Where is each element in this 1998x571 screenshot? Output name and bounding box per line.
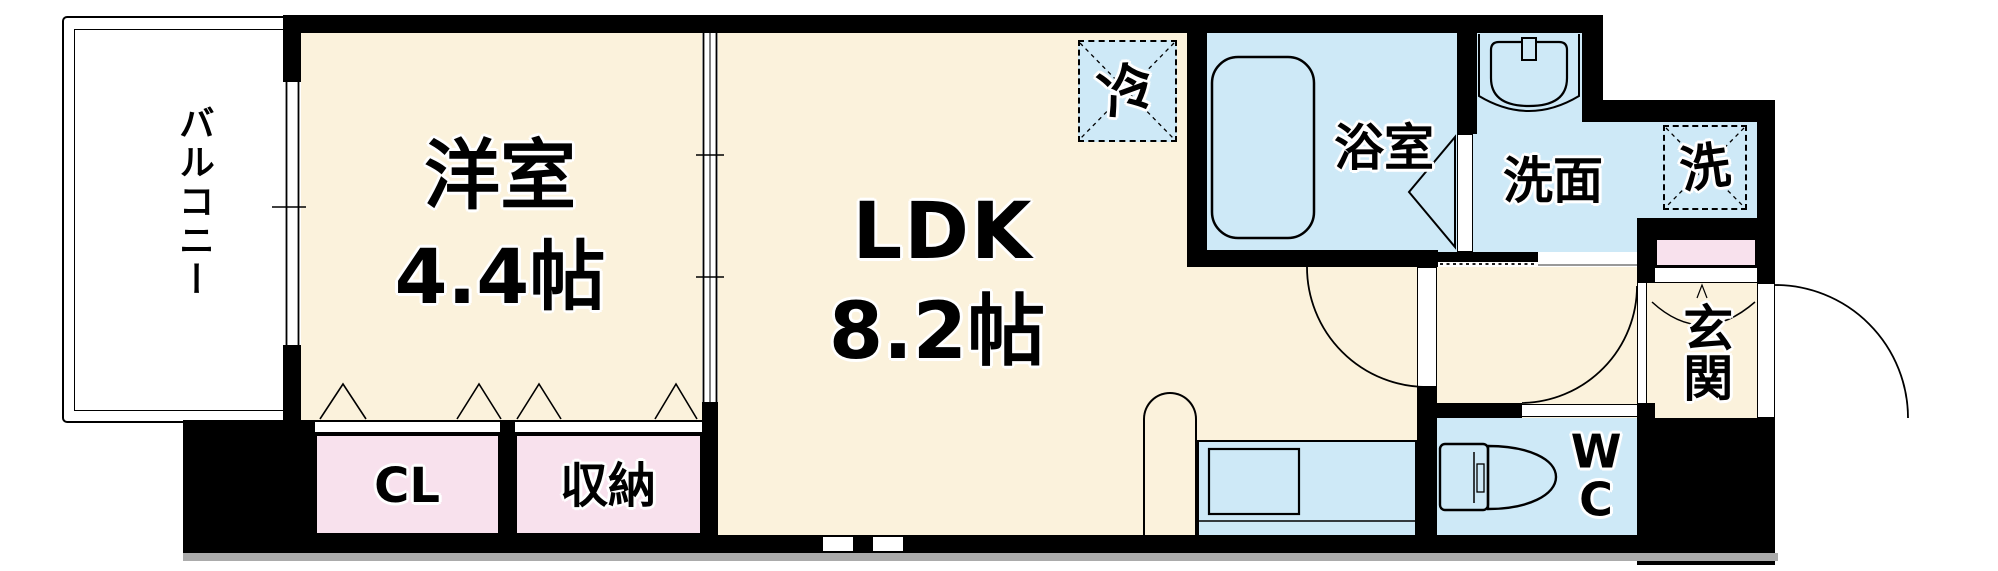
wall-partition-post [702, 402, 718, 535]
wall-vent-1 [823, 537, 853, 551]
wall-left-lower [283, 345, 301, 420]
wall-vent-2 [873, 537, 903, 551]
wall-bathroom-right [1457, 33, 1477, 134]
shoe-cabinet-track [1655, 267, 1757, 283]
wall-entrance-left [1637, 218, 1655, 283]
western-ldk-partition-door [702, 33, 718, 402]
wall-right [1757, 100, 1775, 283]
kitchen-counter [1197, 440, 1417, 537]
washer-space-label: 洗 [1677, 139, 1734, 198]
entrance-door [1757, 283, 1775, 418]
bathroom-label: 浴室 [1334, 122, 1434, 175]
wall-bathroom-left [1187, 33, 1207, 267]
entrance-label: 玄関 [1678, 302, 1731, 402]
western-room-label: 洋室 [424, 136, 576, 216]
wall-bottom-left-block [183, 420, 315, 553]
hallway-floor [1435, 267, 1637, 418]
wc-door [1522, 404, 1637, 417]
western-room-floor [301, 33, 702, 420]
wall-below-washer [1640, 218, 1775, 240]
balcony-label: バルコニー [174, 105, 212, 300]
floor-plan: バルコニー 洋室 4.4帖 LDK 8.2帖 冷 浴室 洗面 洗 玄関 WC C… [0, 0, 1998, 571]
wall-step-right-of-washroom [1582, 15, 1603, 122]
drop-shadow [183, 553, 1778, 561]
wall-bathroom-bottom [1187, 250, 1438, 267]
ldk-size-label: 8.2帖 [829, 292, 1045, 374]
wall-top [285, 15, 1603, 33]
wall-closet-divider [500, 420, 515, 535]
washroom-label: 洗面 [1503, 155, 1603, 208]
ldk-door [1417, 267, 1437, 387]
western-room-size-label: 4.4帖 [395, 237, 606, 317]
washroom-floor-lower [1582, 218, 1640, 252]
bathroom-door [1457, 134, 1473, 252]
balcony-window [284, 82, 301, 345]
wall-bottom-right-block [1655, 418, 1775, 565]
entrance-hall-divider [1637, 283, 1647, 403]
ldk-label: LDK [853, 192, 1034, 274]
entrance-door-swing-arc [1775, 285, 1908, 418]
wall-wc-top [1417, 403, 1522, 418]
wall-wc-right [1637, 403, 1655, 565]
closet-label: CL [374, 461, 440, 511]
wall-left-upper [283, 15, 301, 82]
washroom-floor [1473, 33, 1582, 252]
wc-label: WC [1571, 428, 1622, 525]
kitchen-partition-stub [1143, 392, 1197, 540]
wall-top-right [1603, 100, 1775, 122]
wall-washroom-threshold-bar [1433, 252, 1538, 262]
storage-label: 収納 [560, 461, 656, 511]
